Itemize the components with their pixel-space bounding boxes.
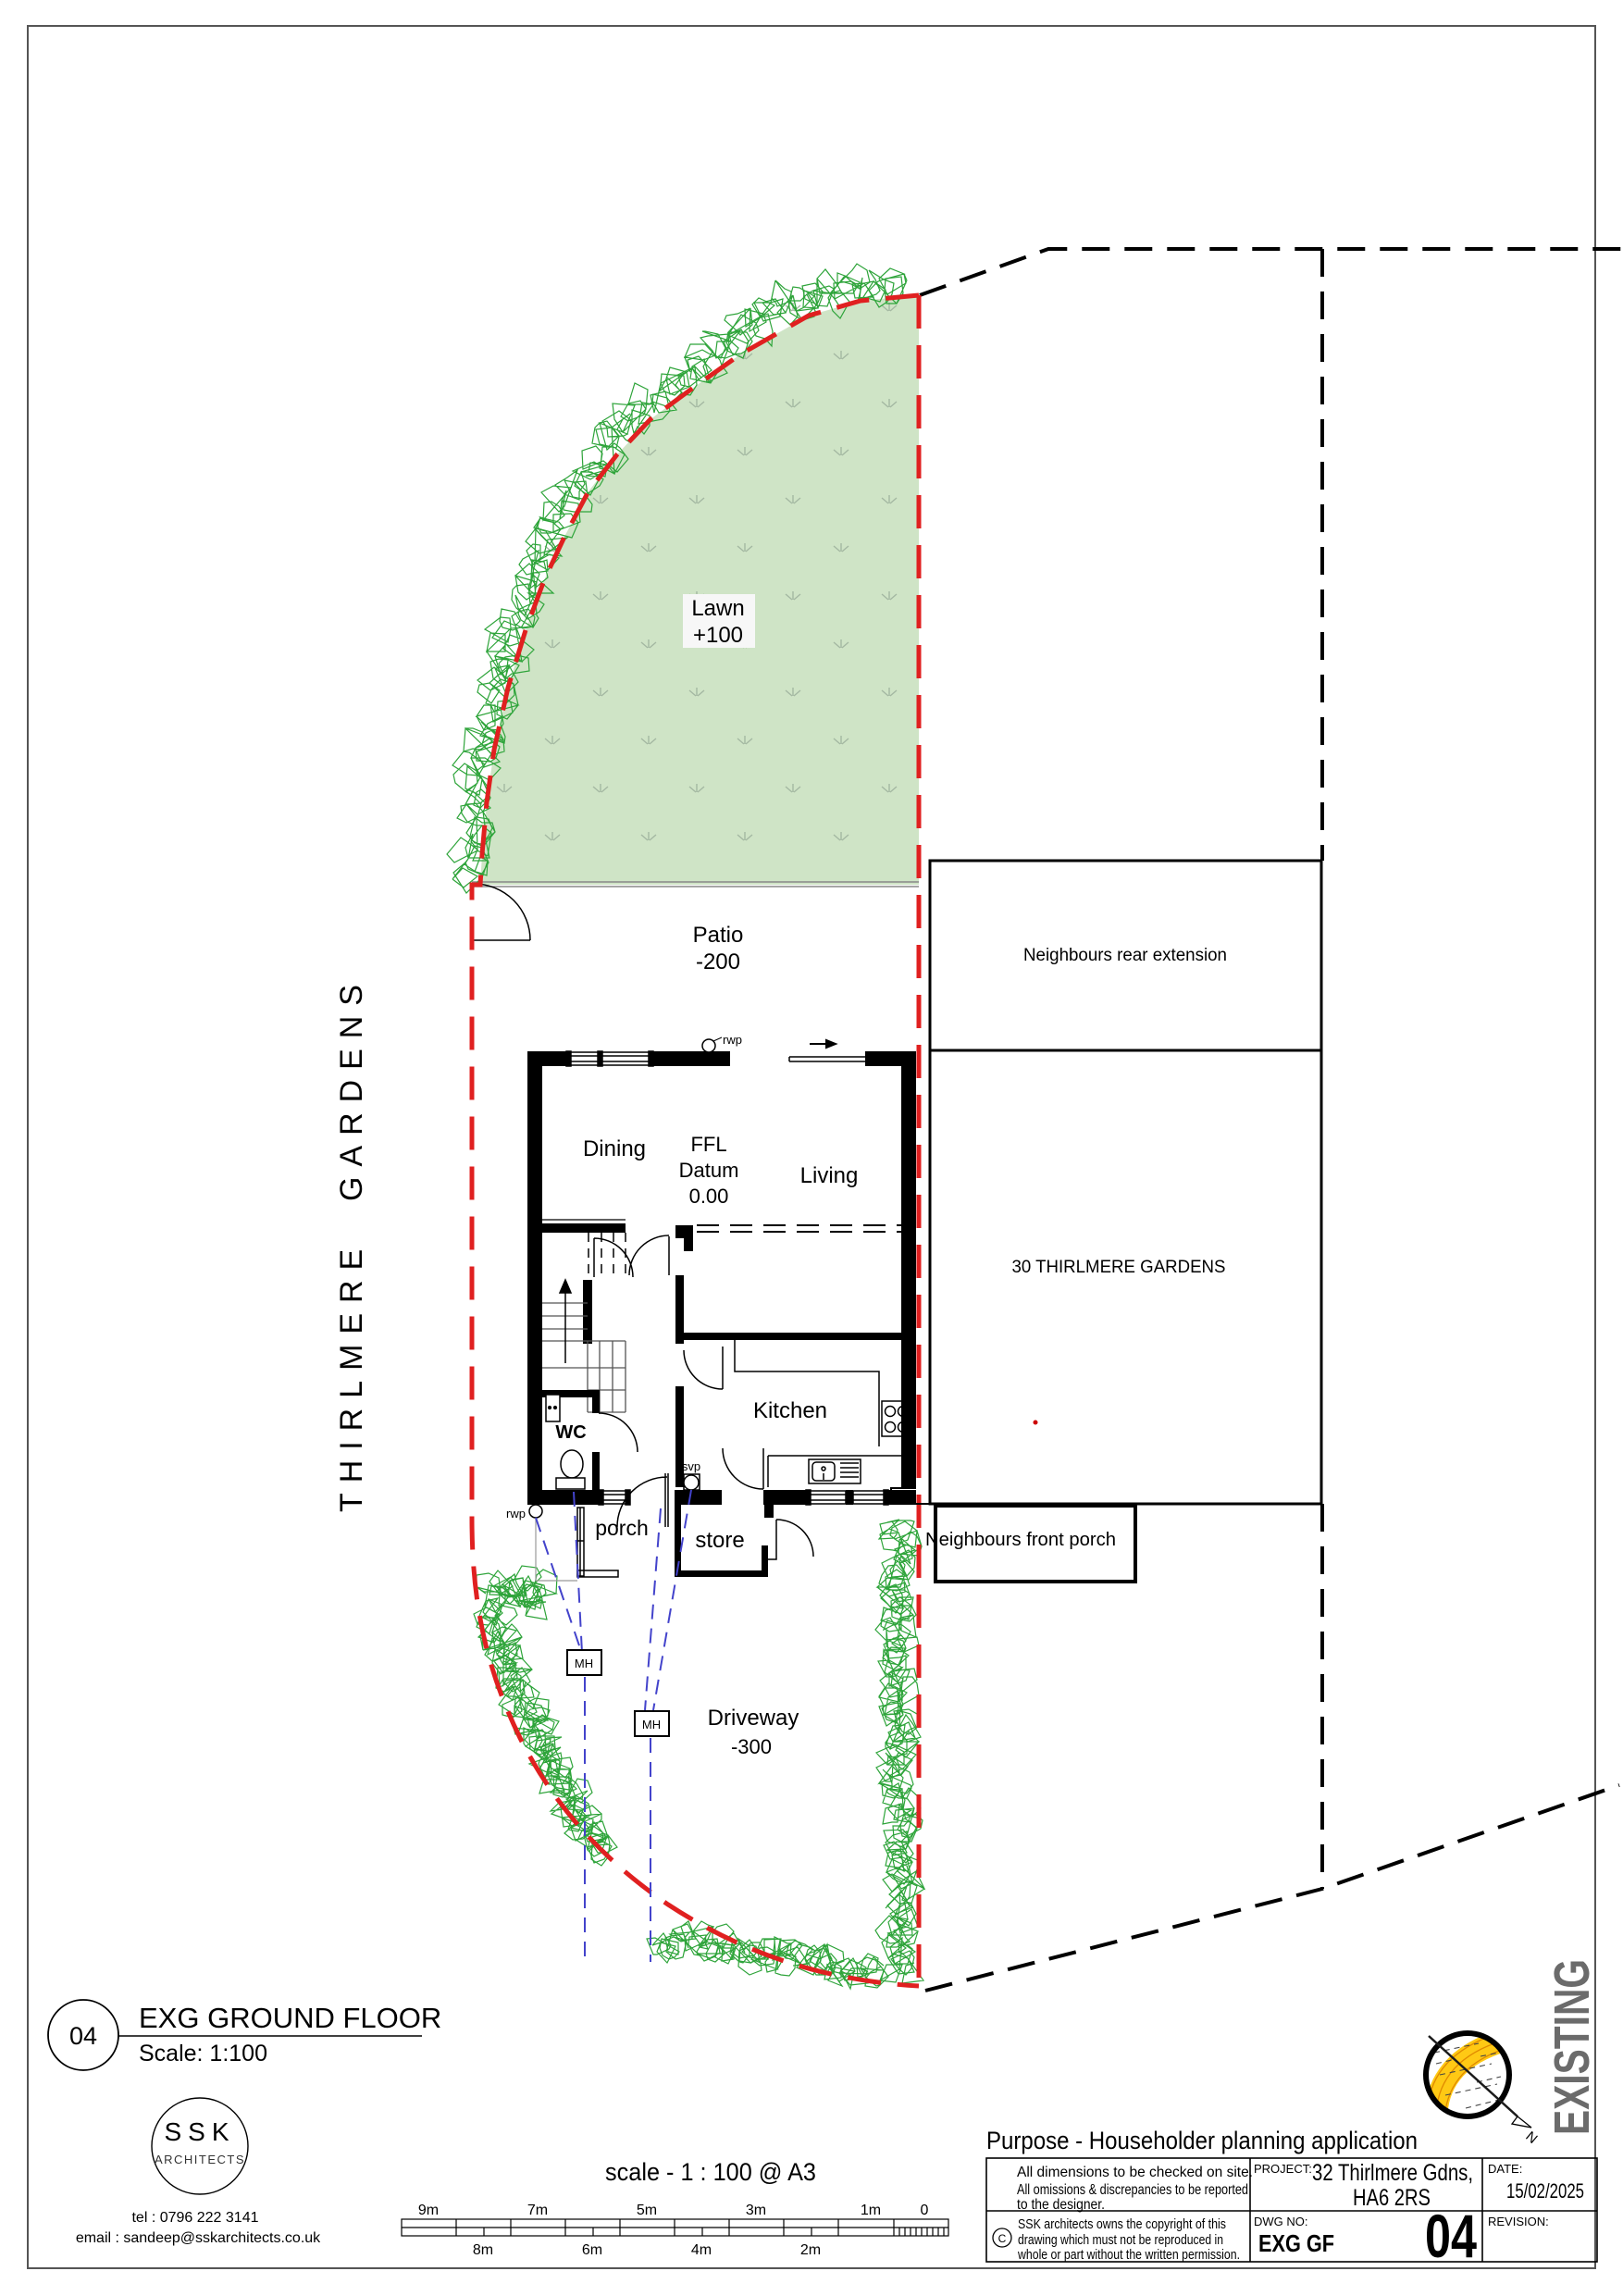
svg-text:Driveway: Driveway: [708, 1706, 799, 1731]
svg-text:-300: -300: [731, 1735, 772, 1758]
svg-text:All omissions & discrepancies: All omissions & discrepancies to be repo…: [1017, 2182, 1248, 2198]
svg-text:04: 04: [1425, 2202, 1477, 2270]
svg-text:All dimensions to be checked o: All dimensions to be checked on site.: [1017, 2165, 1253, 2180]
svg-text:4m: 4m: [691, 2242, 712, 2258]
svg-text:FFL: FFL: [690, 1133, 726, 1156]
svg-text:scale - 1 : 100 @ A3: scale - 1 : 100 @ A3: [605, 2158, 816, 2186]
svg-text:+100: +100: [693, 623, 743, 648]
svg-text:Neighbours rear extension: Neighbours rear extension: [1023, 946, 1227, 965]
svg-text:drawing which must not be repr: drawing which must not be reproduced in: [1018, 2232, 1223, 2248]
svg-text:store: store: [695, 1528, 744, 1553]
svg-text:30 THIRLMERE GARDENS: 30 THIRLMERE GARDENS: [1012, 1258, 1226, 1277]
svg-text:Datum: Datum: [679, 1159, 739, 1182]
svg-text:04: 04: [69, 2022, 97, 2050]
svg-text:0: 0: [921, 2203, 929, 2218]
svg-text:DATE:: DATE:: [1488, 2162, 1522, 2176]
svg-text:rwp: rwp: [506, 1507, 526, 1520]
svg-text:5m: 5m: [637, 2203, 657, 2218]
svg-text:to the designer.: to the designer.: [1017, 2197, 1105, 2213]
svg-text:REVISION:: REVISION:: [1488, 2215, 1549, 2228]
svg-text:8m: 8m: [473, 2242, 493, 2258]
svg-text:-200: -200: [696, 949, 740, 974]
svg-text:Dining: Dining: [583, 1136, 646, 1161]
svg-text:1m: 1m: [861, 2203, 881, 2218]
svg-text:WC: WC: [555, 1422, 586, 1443]
svg-text:EXISTING: EXISTING: [1544, 1959, 1600, 2135]
svg-text:Living: Living: [800, 1163, 859, 1188]
svg-text:SSK architects owns the copyri: SSK architects owns the copyright of thi…: [1018, 2216, 1226, 2232]
svg-text:Kitchen: Kitchen: [753, 1398, 827, 1423]
svg-text:porch: porch: [595, 1516, 649, 1540]
svg-text:email : sandeep@sskarchitects.: email : sandeep@sskarchitects.co.uk: [76, 2230, 321, 2246]
svg-text:Lawn: Lawn: [691, 596, 744, 621]
svg-text:9m: 9m: [418, 2203, 439, 2218]
svg-text:EXG GF: EXG GF: [1258, 2229, 1334, 2257]
svg-text:6m: 6m: [582, 2242, 602, 2258]
svg-text:2m: 2m: [800, 2242, 821, 2258]
svg-text:15/02/2025: 15/02/2025: [1506, 2179, 1584, 2203]
svg-text:Purpose - Householder planning: Purpose - Householder planning applicati…: [986, 2127, 1418, 2154]
svg-text:3m: 3m: [746, 2203, 766, 2218]
svg-text:Scale: 1:100: Scale: 1:100: [139, 2041, 267, 2066]
svg-text:C: C: [998, 2232, 1007, 2245]
svg-text:HA6 2RS: HA6 2RS: [1353, 2185, 1431, 2211]
svg-text:32 Thirlmere Gdns,: 32 Thirlmere Gdns,: [1312, 2160, 1473, 2186]
svg-text:SSK: SSK: [164, 2117, 235, 2146]
svg-text:7m: 7m: [527, 2203, 548, 2218]
svg-text:0.00: 0.00: [689, 1185, 729, 1208]
svg-text:EXG GROUND FLOOR: EXG GROUND FLOOR: [139, 2002, 441, 2034]
svg-text:rwp: rwp: [723, 1033, 742, 1047]
svg-text:DWG NO:: DWG NO:: [1254, 2215, 1308, 2228]
svg-text:Patio: Patio: [693, 923, 744, 948]
svg-text:MH: MH: [642, 1718, 661, 1731]
svg-text:svp: svp: [682, 1459, 700, 1473]
svg-text:PROJECT:: PROJECT:: [1254, 2162, 1312, 2176]
svg-text:MH: MH: [575, 1657, 593, 1670]
svg-text:ARCHITECTS: ARCHITECTS: [155, 2153, 245, 2166]
svg-text:Neighbours front porch: Neighbours front porch: [925, 1530, 1116, 1550]
svg-text:whole or part without the writ: whole or part without the written permis…: [1017, 2247, 1240, 2263]
svg-text:tel : 0796 222 3141: tel : 0796 222 3141: [131, 2210, 258, 2226]
